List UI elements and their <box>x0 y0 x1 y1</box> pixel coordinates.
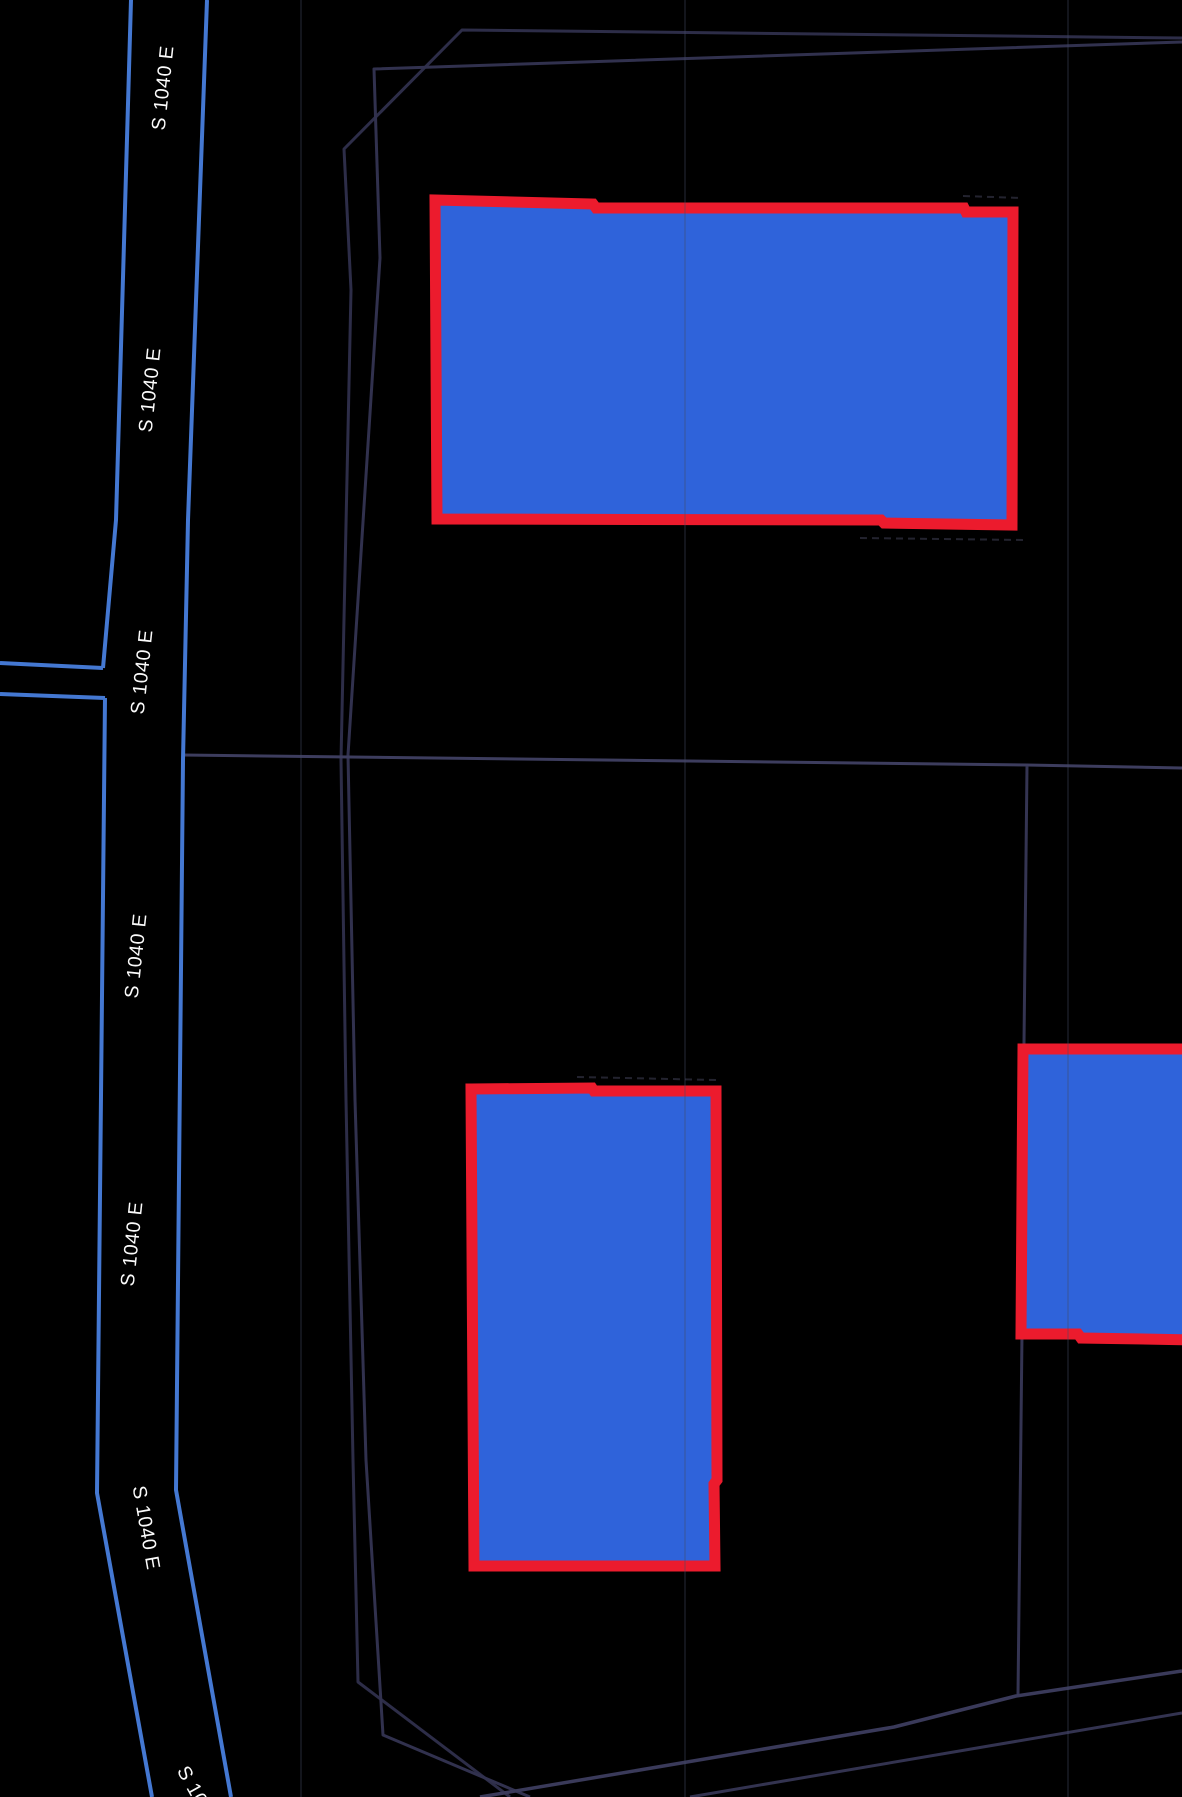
highlight-parcel-top[interactable] <box>435 200 1013 525</box>
map-canvas[interactable]: S 1040 E S 1040 E S 1040 E S 1040 E S 10… <box>0 0 1182 1797</box>
highlight-parcel-middle[interactable] <box>471 1088 717 1566</box>
highlight-parcel-right[interactable] <box>1021 1049 1182 1340</box>
map-viewport[interactable]: S 1040 E S 1040 E S 1040 E S 1040 E S 10… <box>0 0 1182 1797</box>
